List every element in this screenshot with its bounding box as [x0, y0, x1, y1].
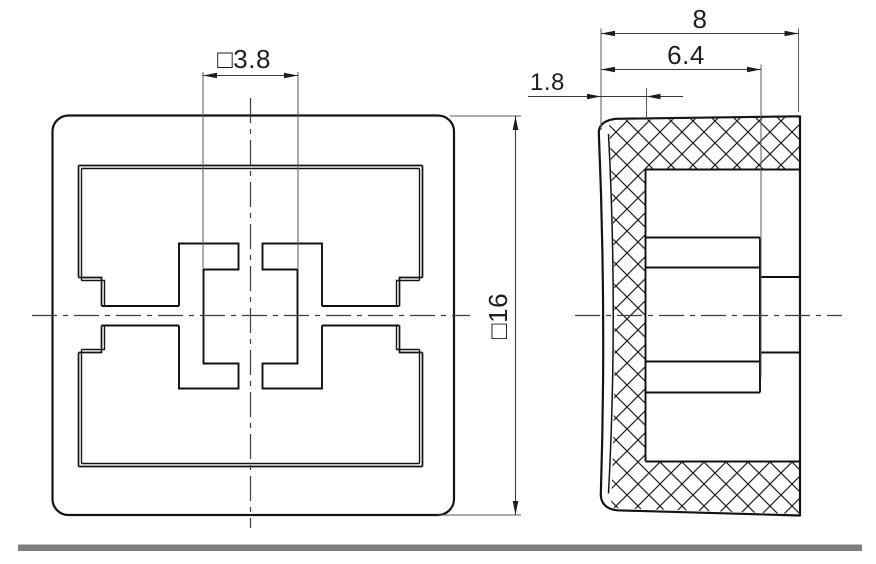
dim-arrow-left-icon: [647, 94, 661, 100]
technical-drawing: □3.8 □16 8 6.4: [0, 0, 876, 564]
dim-arrow-left-icon: [601, 31, 615, 37]
dim-1-8-label: 1.8: [530, 69, 565, 96]
dimension-outer-square: □16: [438, 116, 521, 515]
dim-8-label: 8: [693, 4, 708, 34]
dim-arrow-left-icon: [203, 73, 217, 79]
dim-arrow-up-icon: [513, 116, 519, 130]
dim-3-8-label: □3.8: [217, 44, 271, 74]
dim-arrow-right-icon: [747, 67, 761, 73]
dim-6-4-label: 6.4: [667, 40, 705, 70]
dim-arrow-right-icon: [587, 94, 601, 100]
dim-arrow-right-icon: [785, 31, 799, 37]
dim-arrow-left-icon: [601, 67, 615, 73]
dim-16-label: □16: [483, 293, 513, 339]
drawing-canvas: □3.8 □16 8 6.4: [0, 0, 876, 564]
dim-arrow-right-icon: [284, 73, 298, 79]
front-view: [32, 98, 470, 528]
dimension-wall-thickness: 1.8: [528, 69, 683, 119]
bottom-divider-bar: [18, 545, 862, 552]
dim-arrow-down-icon: [513, 501, 519, 515]
side-view: [575, 116, 842, 515]
